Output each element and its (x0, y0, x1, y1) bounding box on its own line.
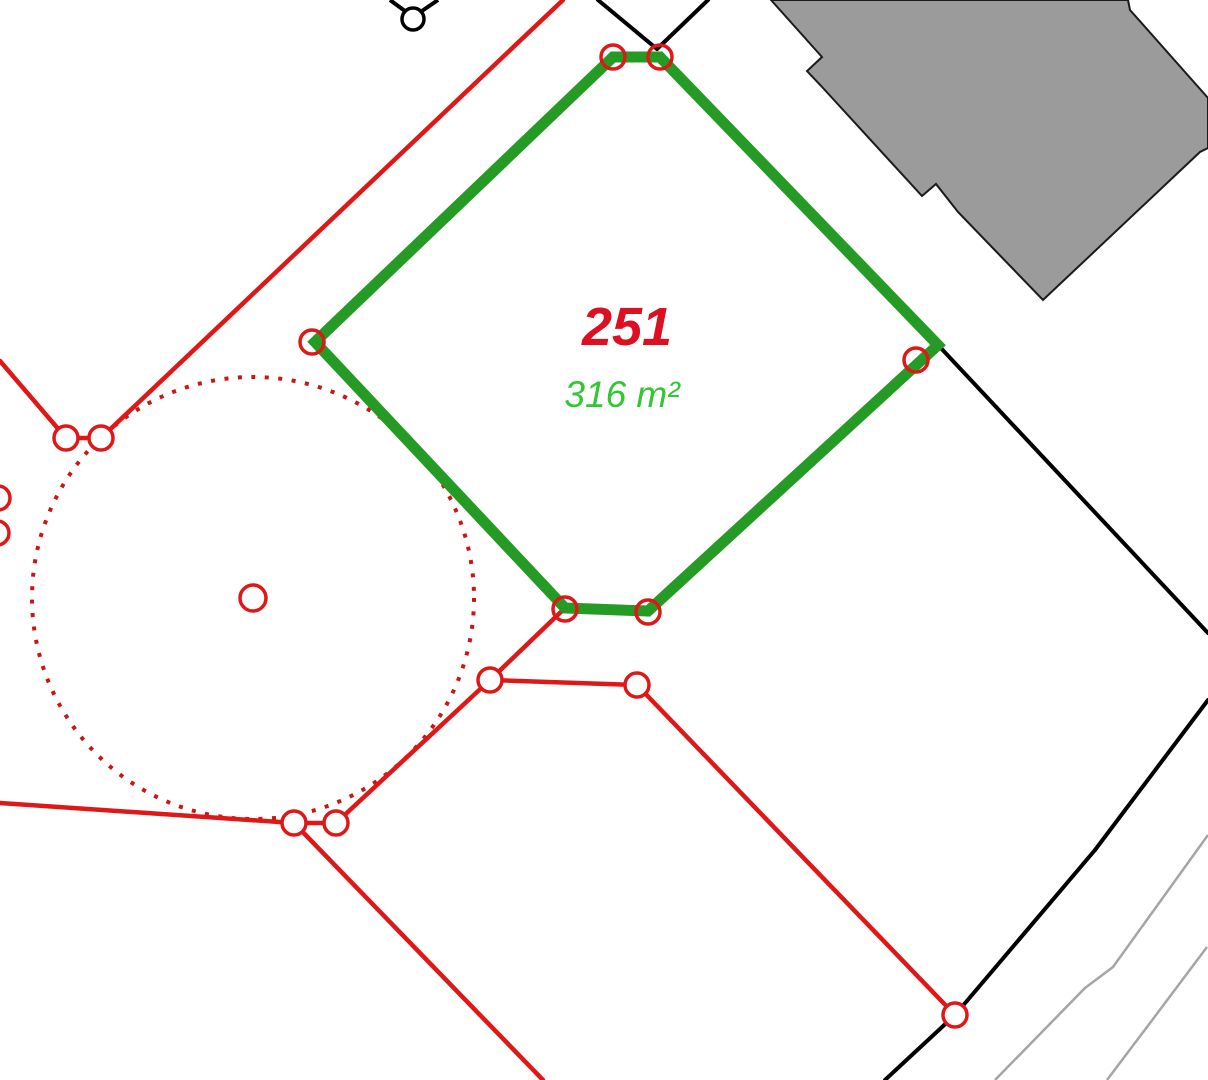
parcel-area-label: 316 m² (564, 374, 681, 415)
vertex-marker[interactable] (478, 668, 502, 692)
vertex-marker[interactable] (324, 811, 348, 835)
black-boundary-line (938, 345, 1208, 633)
red-boundary-line (0, 803, 294, 823)
labels-layer: 251 316 m² (564, 297, 681, 415)
road-edge-lines-layer (995, 835, 1208, 1080)
cadastral-map: 251 316 m² (0, 0, 1208, 1080)
vertex-marker[interactable] (943, 1003, 967, 1027)
survey-point-layer (390, 0, 438, 30)
red-boundary-line (294, 823, 543, 1080)
black-boundary-line (885, 1015, 955, 1080)
building-footprint (771, 0, 1208, 300)
survey-point-marker[interactable] (402, 8, 424, 30)
black-boundary-line (955, 850, 1095, 1015)
road-edge-line (1107, 947, 1207, 1080)
black-boundary-line (598, 0, 657, 49)
vertex-marker[interactable] (282, 811, 306, 835)
vertex-marker[interactable] (54, 426, 78, 450)
black-boundary-line (1095, 700, 1208, 850)
red-boundary-line (637, 685, 955, 1015)
vertex-marker[interactable] (0, 521, 9, 545)
red-boundary-line (101, 0, 563, 438)
red-boundary-lines-layer (0, 0, 955, 1080)
vertex-marker[interactable] (0, 486, 10, 510)
red-boundary-line (0, 361, 66, 438)
red-boundary-line (336, 680, 490, 823)
black-boundary-line (657, 0, 708, 49)
parcel-number-label: 251 (581, 297, 672, 357)
road-edge-line (995, 835, 1208, 1080)
circle-center-point-marker[interactable] (240, 585, 266, 611)
red-boundary-line (490, 680, 637, 685)
vertex-marker[interactable] (625, 673, 649, 697)
map-canvas[interactable]: 251 316 m² (0, 0, 1208, 1080)
vertex-marker[interactable] (89, 426, 113, 450)
red-boundary-line (490, 608, 565, 680)
building-footprint-layer (771, 0, 1208, 300)
